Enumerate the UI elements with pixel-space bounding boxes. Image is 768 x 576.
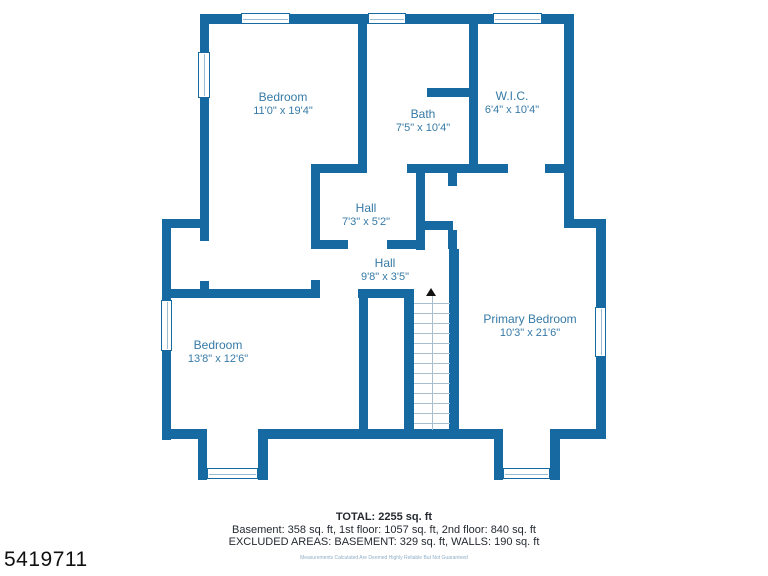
room-name: Primary Bedroom	[483, 312, 576, 326]
wall-segment	[200, 14, 209, 241]
window-symbol	[368, 13, 406, 24]
room-dimensions: 9'8" x 3'5"	[361, 270, 409, 284]
wall-segment	[449, 249, 459, 439]
room-label-bath: Bath 7'5" x 10'4"	[396, 107, 450, 135]
room-name: Bedroom	[253, 90, 313, 104]
room-name: Hall	[342, 201, 390, 215]
summary-floors: Basement: 358 sq. ft, 1st floor: 1057 sq…	[0, 524, 768, 537]
window-symbol	[161, 300, 172, 351]
room-label-primary-bedroom: Primary Bedroom 10'3" x 21'6"	[483, 312, 576, 340]
area-summary: TOTAL: 2255 sq. ft Basement: 358 sq. ft,…	[0, 511, 768, 561]
window-symbol	[595, 307, 606, 357]
wall-segment	[545, 164, 566, 173]
wall-segment	[261, 429, 498, 439]
window-symbol	[207, 468, 258, 479]
wall-segment	[290, 14, 368, 24]
wall-segment	[258, 429, 268, 480]
room-label-hall-upper: Hall 7'3" x 5'2"	[342, 201, 390, 229]
room-label-bedroom-top: Bedroom 11'0" x 19'4"	[253, 90, 313, 118]
wall-segment	[404, 289, 414, 439]
wall-segment	[311, 164, 320, 249]
floor-plan: Bedroom 11'0" x 19'4" Bath 7'5" x 10'4" …	[0, 0, 768, 576]
wall-segment	[542, 14, 566, 24]
listing-id: 5419711	[4, 548, 88, 572]
window-symbol	[241, 13, 290, 24]
room-label-bedroom-bottom: Bedroom 13'8" x 12'6"	[188, 338, 248, 366]
room-label-wic: W.I.C. 6'4" x 10'4"	[485, 89, 539, 117]
wall-segment	[406, 14, 493, 24]
wall-segment	[311, 280, 320, 289]
room-dimensions: 10'3" x 21'6"	[483, 326, 576, 340]
wall-segment	[200, 281, 209, 290]
room-dimensions: 13'8" x 12'6"	[188, 352, 248, 366]
summary-total: TOTAL: 2255 sq. ft	[0, 511, 768, 524]
window-symbol	[493, 13, 542, 24]
wall-segment	[564, 14, 574, 228]
wall-segment	[494, 429, 503, 480]
wall-segment	[198, 429, 207, 480]
staircase	[414, 294, 450, 430]
room-name: W.I.C.	[485, 89, 539, 103]
wall-segment	[416, 164, 425, 250]
wall-segment	[550, 429, 560, 480]
room-dimensions: 7'5" x 10'4"	[396, 121, 450, 135]
window-symbol	[503, 468, 550, 479]
wall-segment	[427, 88, 470, 97]
room-label-hall-lower: Hall 9'8" x 3'5"	[361, 256, 409, 284]
room-dimensions: 7'3" x 5'2"	[342, 215, 390, 229]
room-name: Bath	[396, 107, 450, 121]
window-symbol	[198, 52, 210, 98]
wall-segment	[359, 289, 368, 439]
stairs-up-arrow-icon	[426, 288, 436, 296]
room-name: Bedroom	[188, 338, 248, 352]
wall-segment	[448, 230, 457, 249]
wall-segment	[358, 14, 367, 173]
wall-segment	[448, 164, 457, 186]
room-dimensions: 6'4" x 10'4"	[485, 103, 539, 117]
room-name: Hall	[361, 256, 409, 270]
summary-excluded: EXCLUDED AREAS: BASEMENT: 329 sq. ft, WA…	[0, 536, 768, 549]
room-dimensions: 11'0" x 19'4"	[253, 104, 313, 118]
summary-disclaimer: Measurements Calculated Are Deemed Highl…	[0, 555, 768, 561]
wall-segment	[162, 289, 320, 298]
wall-segment	[469, 14, 478, 173]
